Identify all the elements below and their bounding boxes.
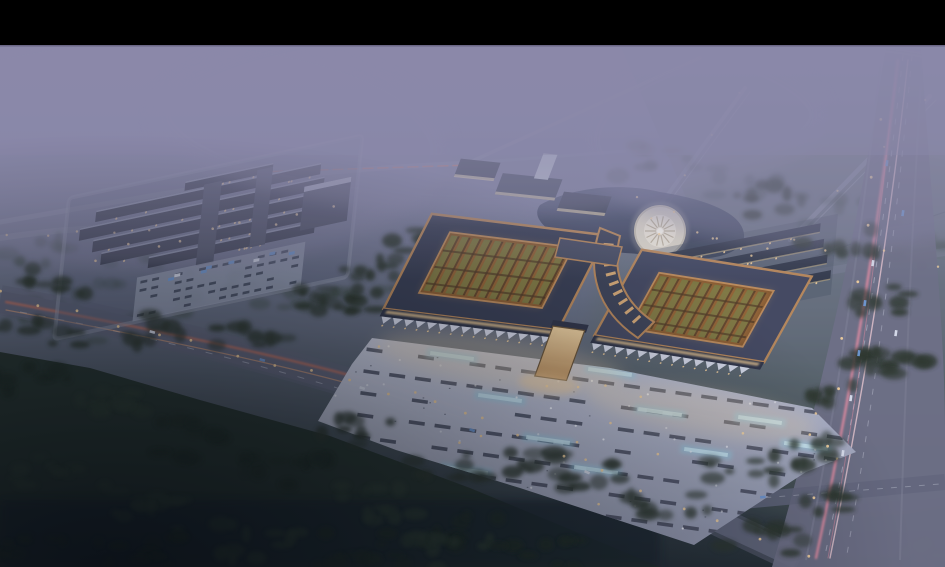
vignette [0, 45, 945, 567]
letterbox-bar [0, 0, 945, 45]
aerial-rendering [0, 0, 945, 567]
scene [0, 15, 945, 567]
letterbox-edge [0, 45, 945, 47]
rendering-canvas [0, 0, 945, 567]
